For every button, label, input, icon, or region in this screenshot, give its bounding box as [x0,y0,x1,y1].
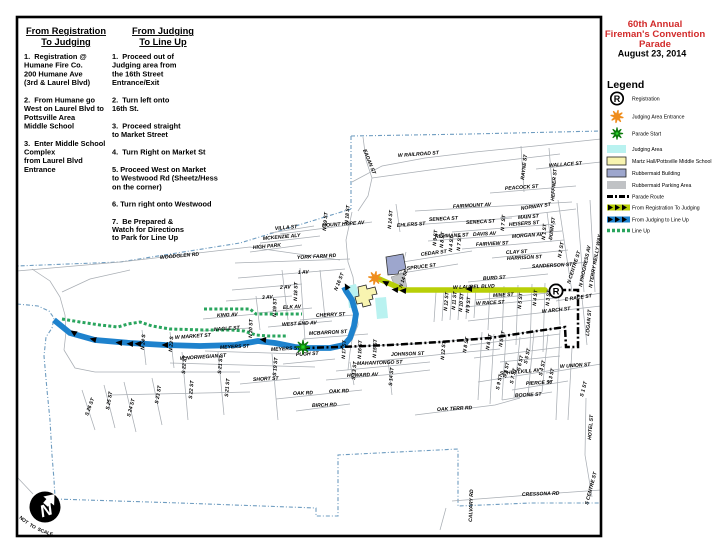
svg-text:CALVARY RD: CALVARY RD [468,489,475,522]
svg-text:1. Registration @: 1. Registration @ [24,52,87,61]
svg-text:2 AV: 2 AV [279,284,292,291]
svg-text:to Market Street: to Market Street [112,130,168,139]
svg-text:Entrance: Entrance [24,165,56,174]
svg-text:R: R [553,287,560,298]
svg-text:West on Laurel Blvd to: West on Laurel Blvd to [24,104,104,113]
svg-text:N 20 ST: N 20 ST [248,318,255,338]
svg-text:4. Turn Right on Market St: 4. Turn Right on Market St [112,148,206,157]
svg-text:Entrance/Exit: Entrance/Exit [112,78,160,87]
svg-text:N 18 ST: N 18 ST [293,281,300,301]
svg-text:Judging area from: Judging area from [112,61,177,70]
svg-text:(3rd & Laurel Blvd): (3rd & Laurel Blvd) [24,78,91,87]
svg-text:From Judging to Line Up: From Judging to Line Up [632,218,689,224]
svg-text:to Westwood Rd (Sheetz/Hess: to Westwood Rd (Sheetz/Hess [112,174,218,183]
svg-text:3. Proceed straight: 3. Proceed straight [112,122,181,131]
svg-text:3. Enter Middle School: 3. Enter Middle School [24,139,105,148]
svg-text:ELK AV: ELK AV [283,304,302,311]
svg-text:DAVIS AV: DAVIS AV [473,231,497,238]
svg-text:Humane Fire Co.: Humane Fire Co. [24,61,83,70]
svg-text:OAK RD: OAK RD [293,390,314,397]
svg-text:1. Proceed out of: 1. Proceed out of [112,52,175,61]
svg-text:6. Turn right onto Westwood: 6. Turn right onto Westwood [112,200,212,209]
svg-text:R: R [614,94,621,104]
svg-text:To Judging: To Judging [41,37,91,47]
svg-text:Registration: Registration [632,97,660,103]
svg-text:From Judging: From Judging [132,26,194,36]
svg-text:the 16th Street: the 16th Street [112,69,164,78]
svg-text:Line Up: Line Up [632,229,650,235]
svg-text:1 AV: 1 AV [298,269,310,276]
svg-text:Legend: Legend [607,79,644,91]
svg-text:MINE ST: MINE ST [493,292,515,299]
svg-text:BIRCH RD: BIRCH RD [312,402,337,409]
svg-text:JOHNSON ST: JOHNSON ST [391,351,425,358]
svg-text:2. From Humane go: 2. From Humane go [24,95,96,104]
svg-text:N 19 ST: N 19 ST [272,297,279,317]
svg-text:Judging Area Entrance: Judging Area Entrance [632,115,685,121]
svg-text:2. Turn left onto: 2. Turn left onto [112,95,170,104]
svg-text:to Park for Line Up: to Park for Line Up [112,233,179,242]
svg-text:16th St.: 16th St. [112,104,139,113]
svg-text:N 17 ST: N 17 ST [341,339,348,359]
svg-text:From Registration: From Registration [26,26,106,36]
svg-text:Parade Route: Parade Route [632,195,664,201]
svg-text:To Line Up: To Line Up [139,37,187,47]
svg-text:Pottsville Area: Pottsville Area [24,113,76,122]
svg-text:Rubbermaid Building: Rubbermaid Building [632,171,680,177]
svg-text:From Registration To Judging: From Registration To Judging [632,206,700,212]
svg-text:August 23, 2014: August 23, 2014 [618,49,687,59]
svg-text:5. Proceed West on Market: 5. Proceed West on Market [112,165,206,174]
svg-text:Complex: Complex [24,148,56,157]
svg-text:on the corner): on the corner) [112,182,162,191]
svg-text:Judging Area: Judging Area [632,147,662,153]
svg-text:N 16 ST: N 16 ST [357,339,364,359]
svg-text:Martz Hall/Pottsville Middle S: Martz Hall/Pottsville Middle School [632,159,712,165]
svg-text:Parade Start: Parade Start [632,132,662,138]
svg-text:200 Humane Ave: 200 Humane Ave [24,69,83,78]
svg-text:BURD ST: BURD ST [483,275,507,282]
svg-text:Middle School: Middle School [24,122,74,131]
svg-text:N 15 ST: N 15 ST [372,338,379,358]
svg-text:from Laurel Blvd: from Laurel Blvd [24,156,83,165]
svg-text:OAK RD: OAK RD [329,388,350,395]
svg-text:KING AV: KING AV [217,312,239,319]
svg-text:Rubbermaid Parking Area: Rubbermaid Parking Area [632,183,692,189]
